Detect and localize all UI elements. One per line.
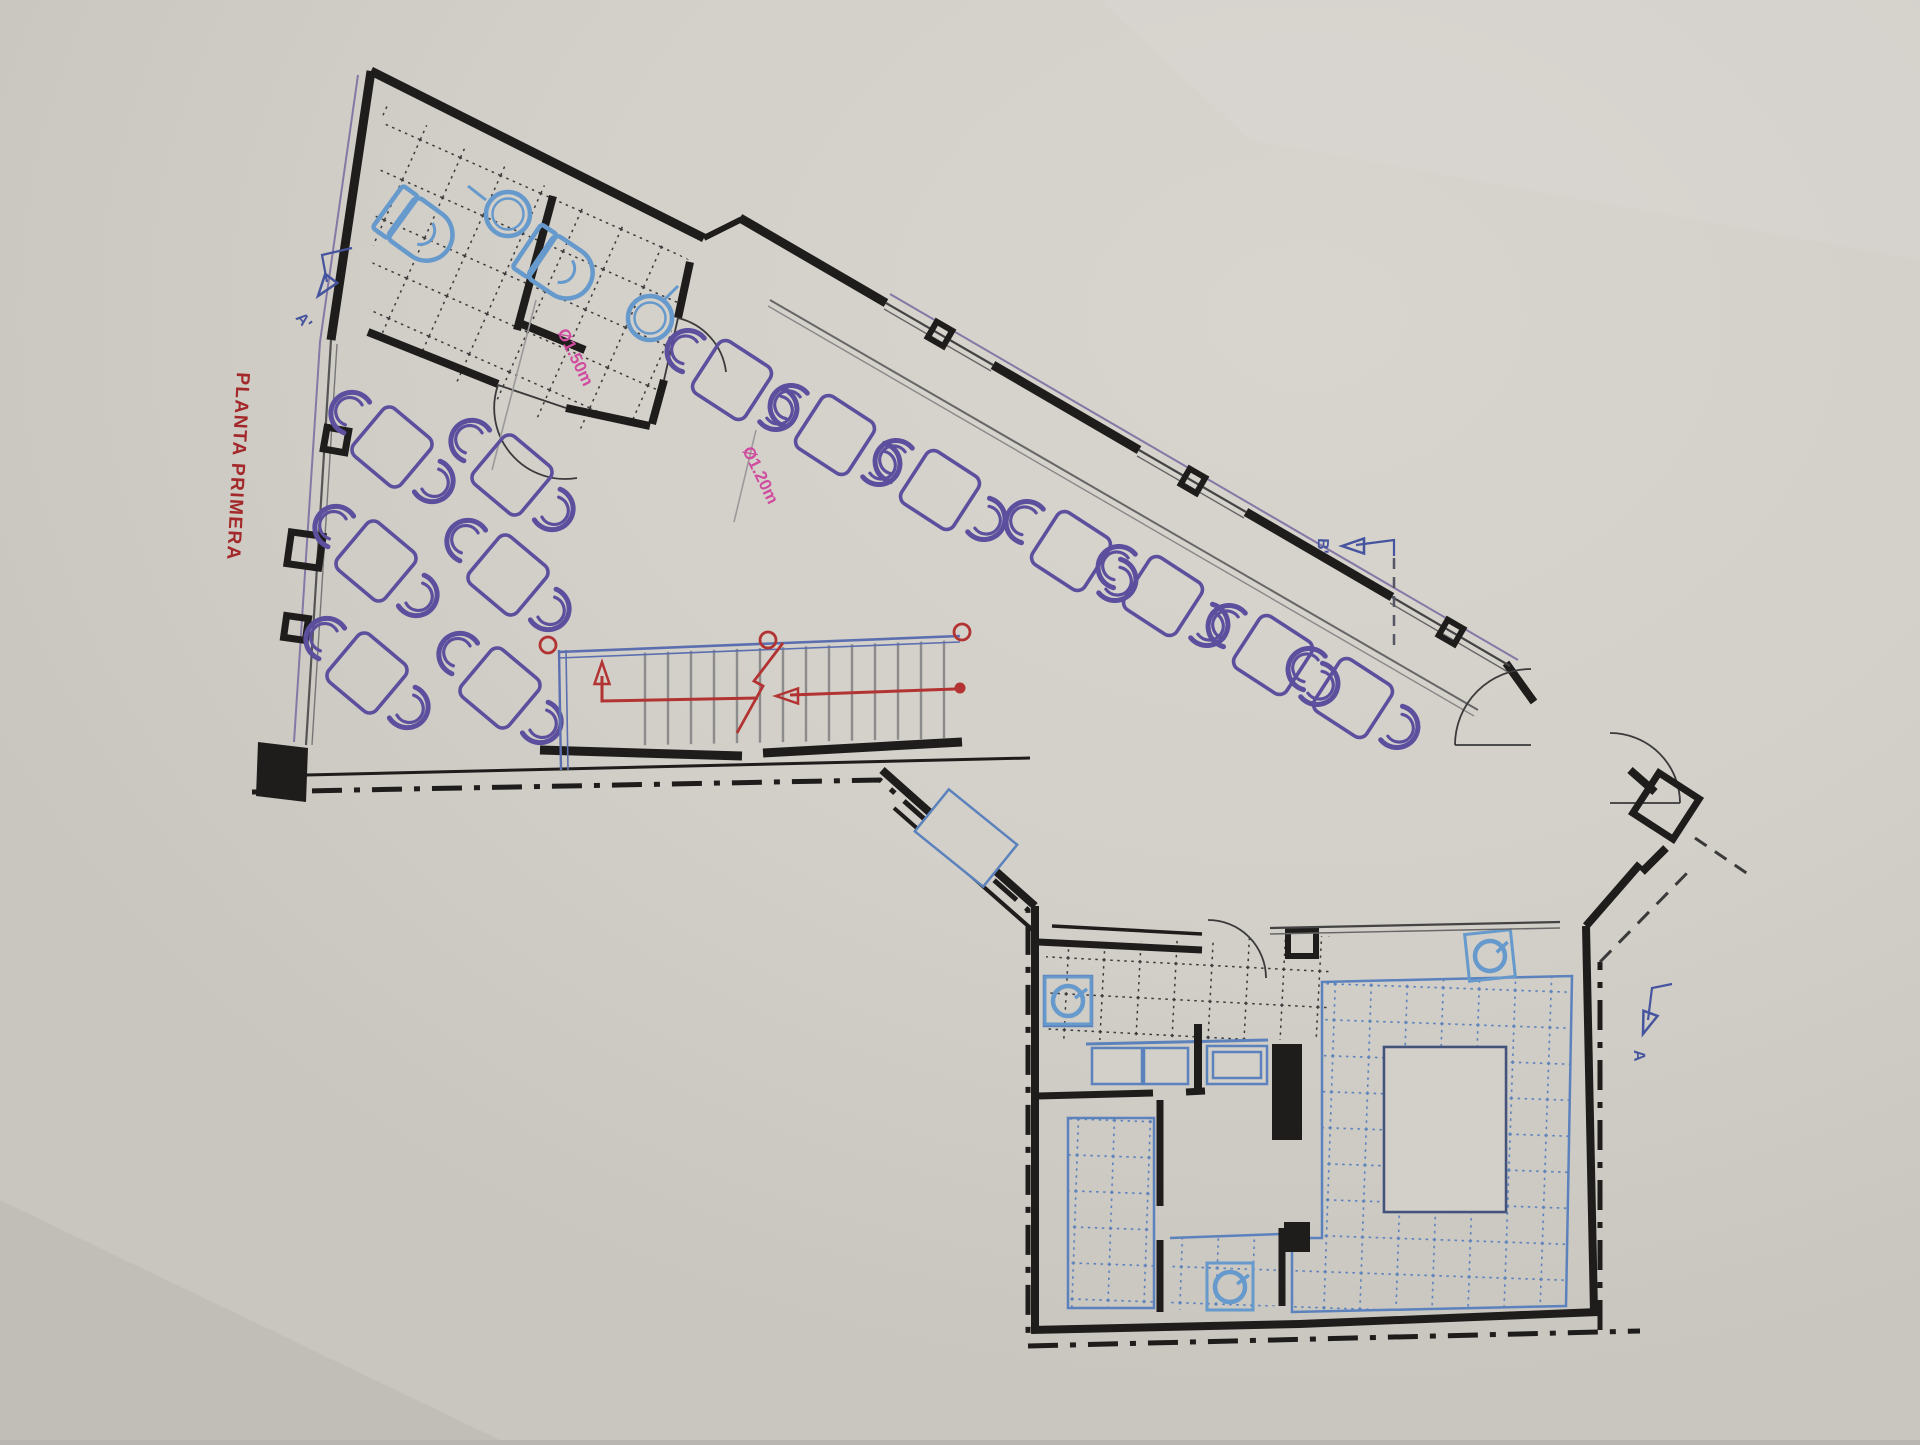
paper-background bbox=[0, 0, 1920, 1440]
section-label-a: A bbox=[1630, 1050, 1647, 1063]
pillar bbox=[1284, 1222, 1310, 1252]
kitchen-island bbox=[1384, 1047, 1506, 1212]
corner-pier bbox=[256, 742, 308, 802]
floorplan-canvas: Ø1.50m Ø1.20m bbox=[0, 0, 1920, 1440]
section-label-b-prime: B' bbox=[1313, 538, 1331, 554]
floor-plan-photo: Ø1.50m Ø1.20m bbox=[0, 0, 1920, 1440]
kitchen-small-room-tiles bbox=[1068, 1118, 1154, 1308]
pillar bbox=[1272, 1044, 1302, 1140]
